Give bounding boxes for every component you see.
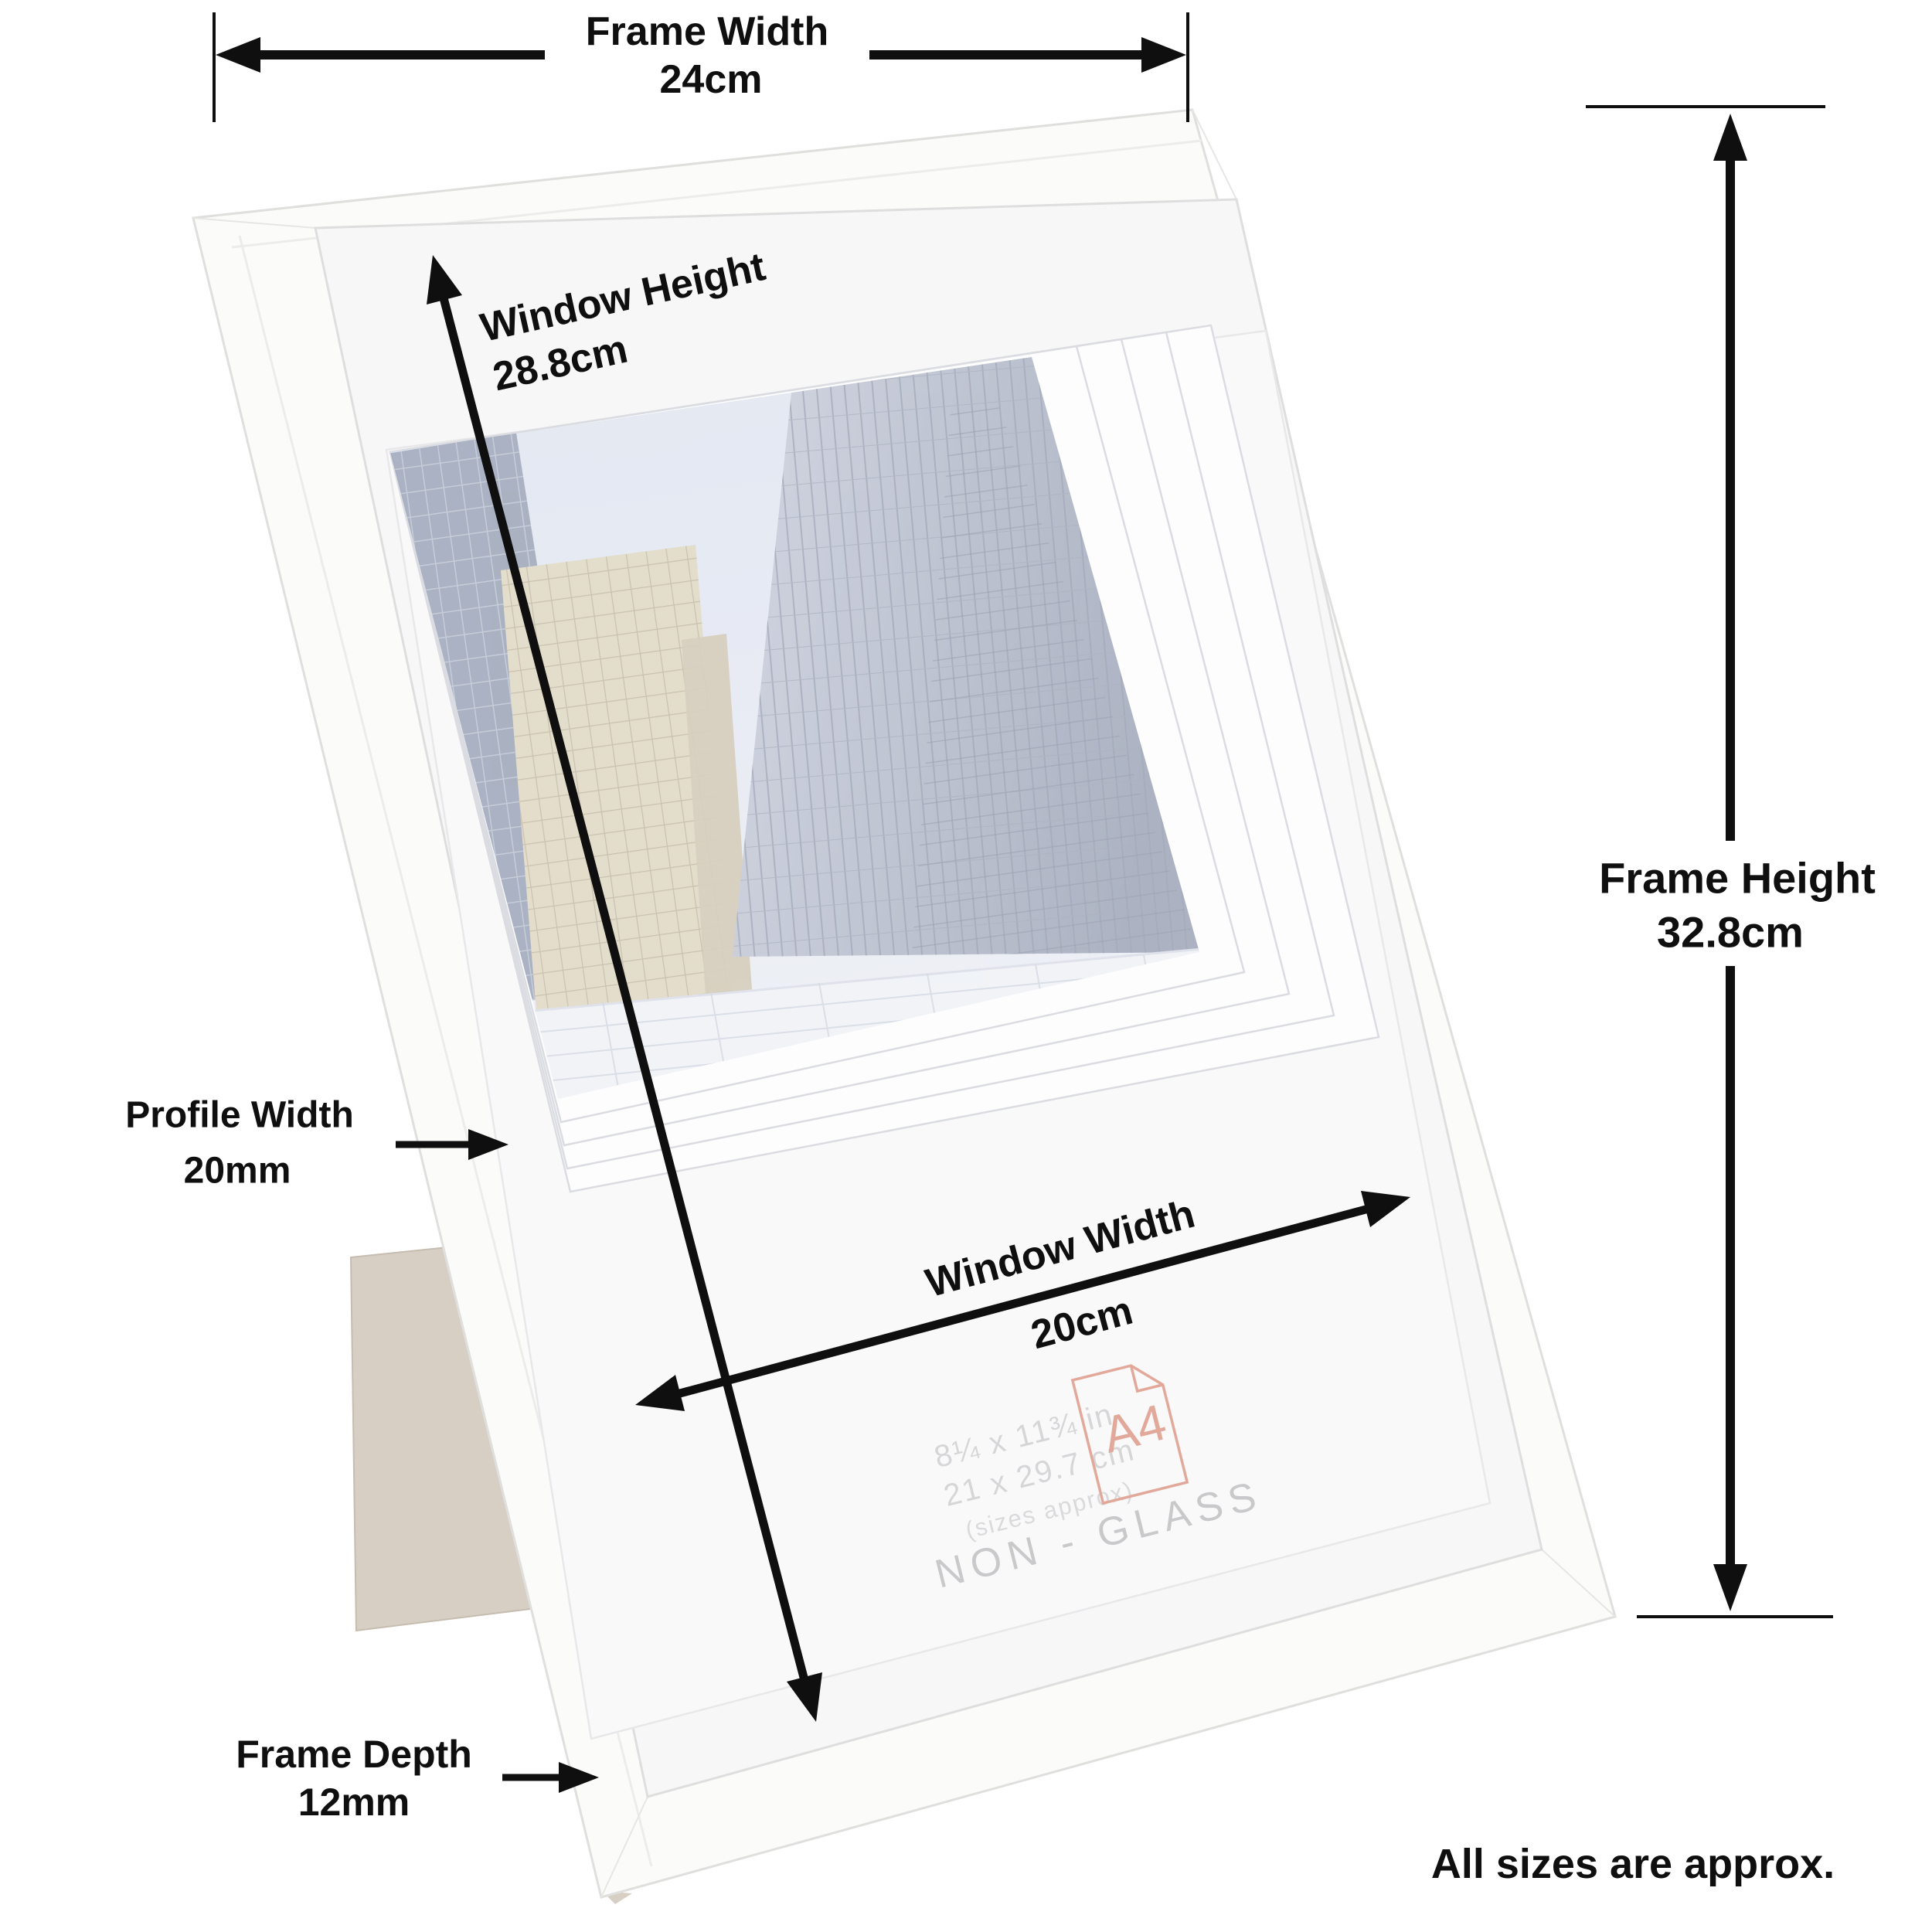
approx-footnote: All sizes are approx.	[1431, 1841, 1835, 1887]
frame-height-arrowhead-down-icon	[1713, 1564, 1747, 1611]
profile-width-label: Profile Width	[125, 1095, 354, 1136]
frame-height-arrowhead-up-icon	[1713, 114, 1747, 161]
frame-width-arrowhead-left-icon	[216, 37, 260, 73]
frame-depth-label: Frame Depth	[236, 1733, 472, 1776]
frame-height-value: 32.8cm	[1657, 908, 1804, 957]
frame-width-label: Frame Width	[586, 9, 828, 54]
frame-depth-value: 12mm	[298, 1781, 410, 1824]
frame-width-dimension: Frame Width 24cm	[214, 9, 1188, 122]
frame-height-dimension: Frame Height 32.8cm	[1586, 107, 1876, 1617]
frame-width-arrowhead-right-icon	[1141, 37, 1186, 73]
profile-width-value: 20mm	[184, 1151, 291, 1192]
frame-width-value: 24cm	[660, 57, 763, 102]
frame-dimension-diagram: 8¼ x 11¾ in 21 x 29.7 cm (sizes approx) …	[0, 0, 1932, 1932]
frame-depth-dimension: Frame Depth 12mm	[236, 1733, 599, 1824]
frame-height-label: Frame Height	[1599, 854, 1876, 903]
